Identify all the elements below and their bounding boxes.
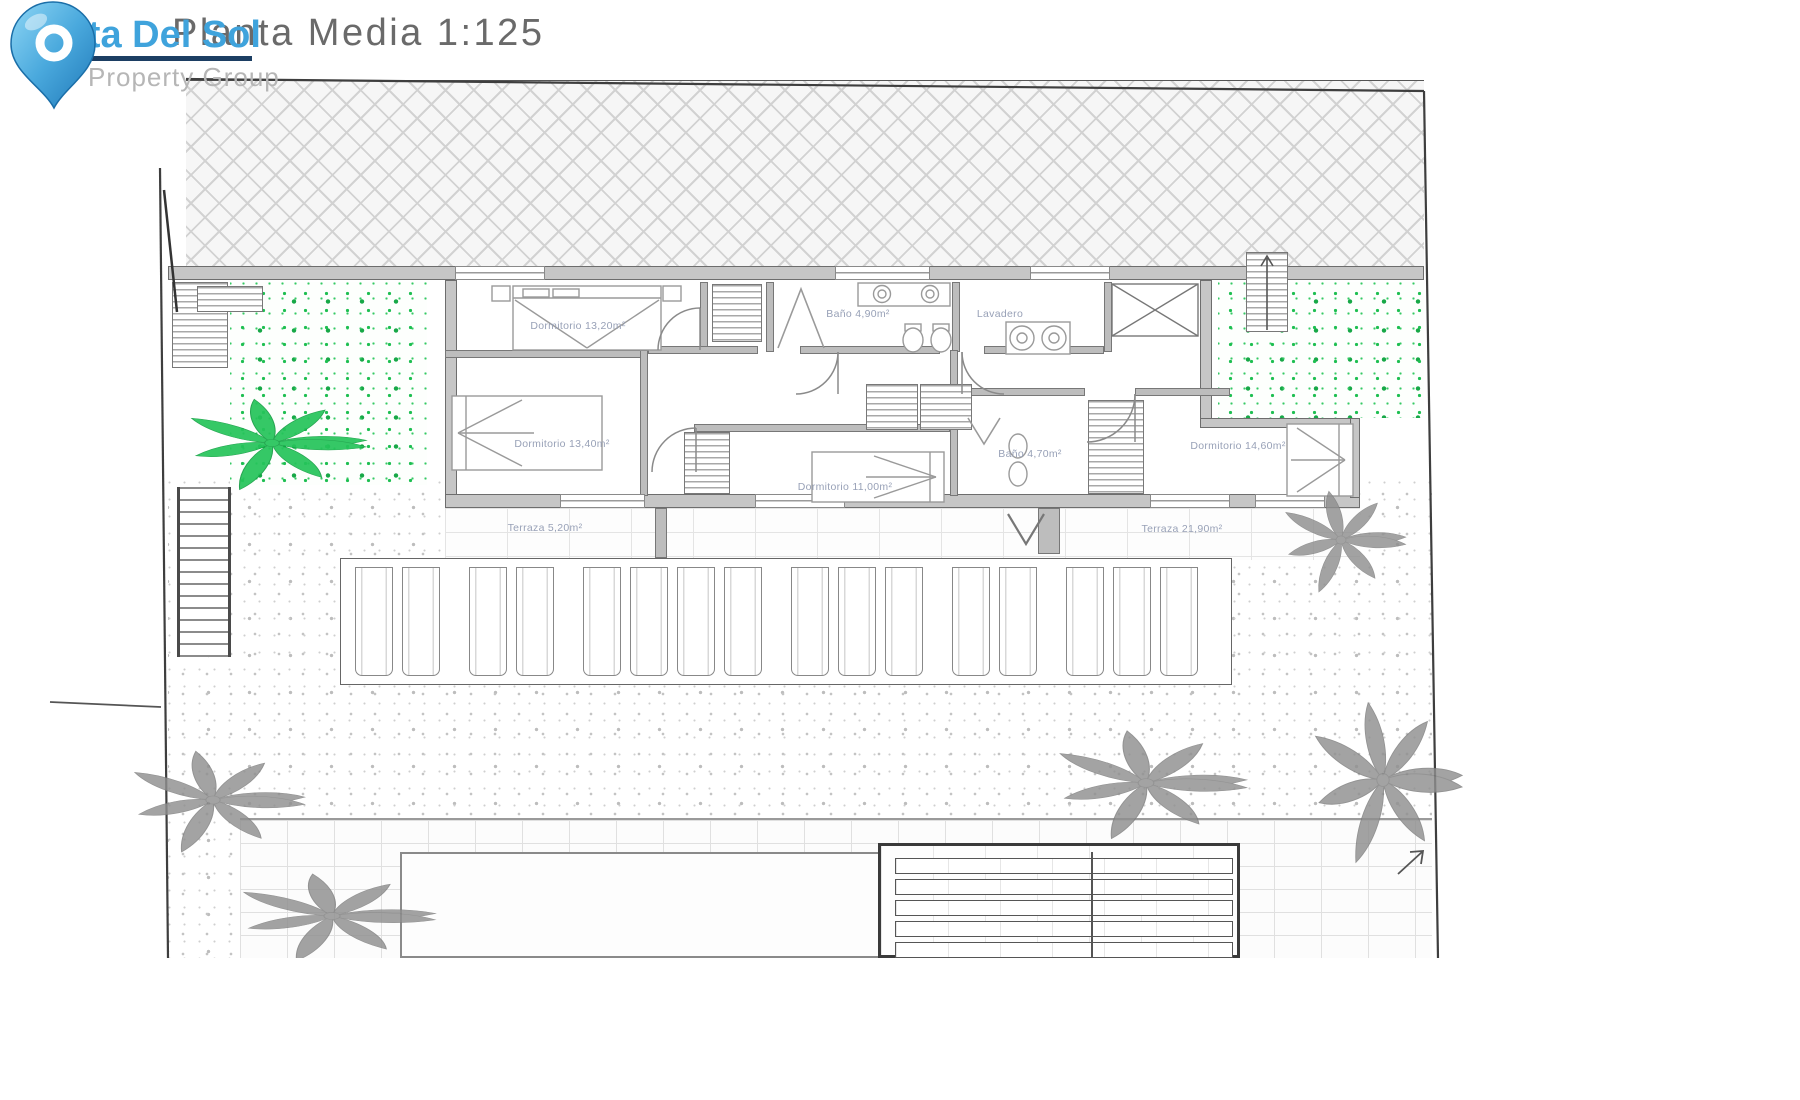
pergola-plank [677, 567, 715, 676]
room-label-dormitorio-4: Dormitorio 14,60m² [1190, 440, 1285, 452]
bottom-margin [0, 958, 1800, 1100]
wardrobe [920, 384, 972, 430]
pergola-plank [402, 567, 440, 676]
pergola-plank [838, 567, 876, 676]
pool-lane [895, 879, 1233, 895]
house-left-wall [445, 280, 457, 496]
terrace-door [1255, 494, 1325, 508]
exterior-stair-left [177, 487, 231, 657]
pool-lane [895, 942, 1233, 958]
map-pin-icon [6, 0, 101, 110]
room-label-dormitorio-1: Dormitorio 13,20m² [530, 320, 625, 332]
pergola-plank [1113, 567, 1151, 676]
pergola-plank [583, 567, 621, 676]
partition [700, 282, 708, 352]
terrace-door [560, 494, 645, 508]
pergola-plank [630, 567, 668, 676]
wardrobe [684, 432, 730, 494]
house-wing-interior [1200, 424, 1356, 496]
room-label-terraza-2: Terraza 21,90m² [1142, 523, 1223, 535]
wardrobe [866, 384, 918, 430]
pergola-plank [355, 567, 393, 676]
partition [640, 350, 648, 496]
pergola-deck [340, 558, 1232, 685]
company-logo: Costa Del Sol Property Group [0, 0, 320, 120]
roof-hatch-band [186, 80, 1424, 272]
house-wing-top-wall [1200, 418, 1360, 428]
window [835, 266, 930, 280]
terrace-strip [445, 508, 1360, 560]
lap-pool [878, 843, 1240, 958]
room-label-bano-2: Baño 4,70m² [998, 448, 1061, 460]
partition [800, 346, 940, 354]
neighbor-boundary-line [50, 702, 161, 707]
terrace-stub-wall [655, 508, 667, 558]
garden-planter-strips [197, 286, 263, 312]
partition [958, 388, 1085, 396]
partition [952, 282, 960, 352]
house-right-wall-upper [1200, 280, 1212, 428]
room-label-dormitorio-3: Dormitorio 11,00m² [798, 481, 892, 493]
room-label-dormitorio-2: Dormitorio 13,40m² [514, 438, 609, 450]
pergola-plank [791, 567, 829, 676]
partition [648, 346, 758, 354]
partition [1104, 282, 1112, 352]
plot-top-wall [168, 266, 1424, 280]
exterior-stair-upper-right [1246, 252, 1288, 332]
terrace-door [755, 494, 845, 508]
deck-platform [400, 852, 888, 958]
window [1030, 266, 1110, 280]
room-label-bano-1: Baño 4,90m² [826, 308, 889, 320]
room-label-lavadero: Lavadero [977, 308, 1023, 320]
pool-divider [1091, 852, 1093, 958]
logo-tagline: Property Group [88, 62, 280, 93]
pergola-plank [999, 567, 1037, 676]
terrace-door [1150, 494, 1230, 508]
pergola-plank [885, 567, 923, 676]
house-wing-right-wall [1350, 418, 1360, 498]
pool-lane [895, 900, 1233, 916]
room-label-terraza-1: Terraza 5,20m² [508, 522, 583, 534]
garden-left [230, 282, 427, 485]
pool-lane [895, 858, 1233, 874]
partition [1135, 388, 1230, 396]
partition [766, 282, 774, 352]
pool-lane [895, 921, 1233, 937]
partition [984, 346, 1104, 354]
pergola-plank [1066, 567, 1104, 676]
wardrobe [1088, 400, 1144, 494]
pergola-plank [516, 567, 554, 676]
terrace-stub-wall [1038, 508, 1060, 554]
floor-plan-canvas: Dormitorio 13,20m² Baño 4,90m² Lavadero … [0, 0, 1800, 1100]
pergola-plank [469, 567, 507, 676]
partition [445, 350, 648, 358]
pergola-plank [724, 567, 762, 676]
pergola-plank [1160, 567, 1198, 676]
wardrobe [712, 284, 762, 342]
pergola-plank [952, 567, 990, 676]
window [455, 266, 545, 280]
